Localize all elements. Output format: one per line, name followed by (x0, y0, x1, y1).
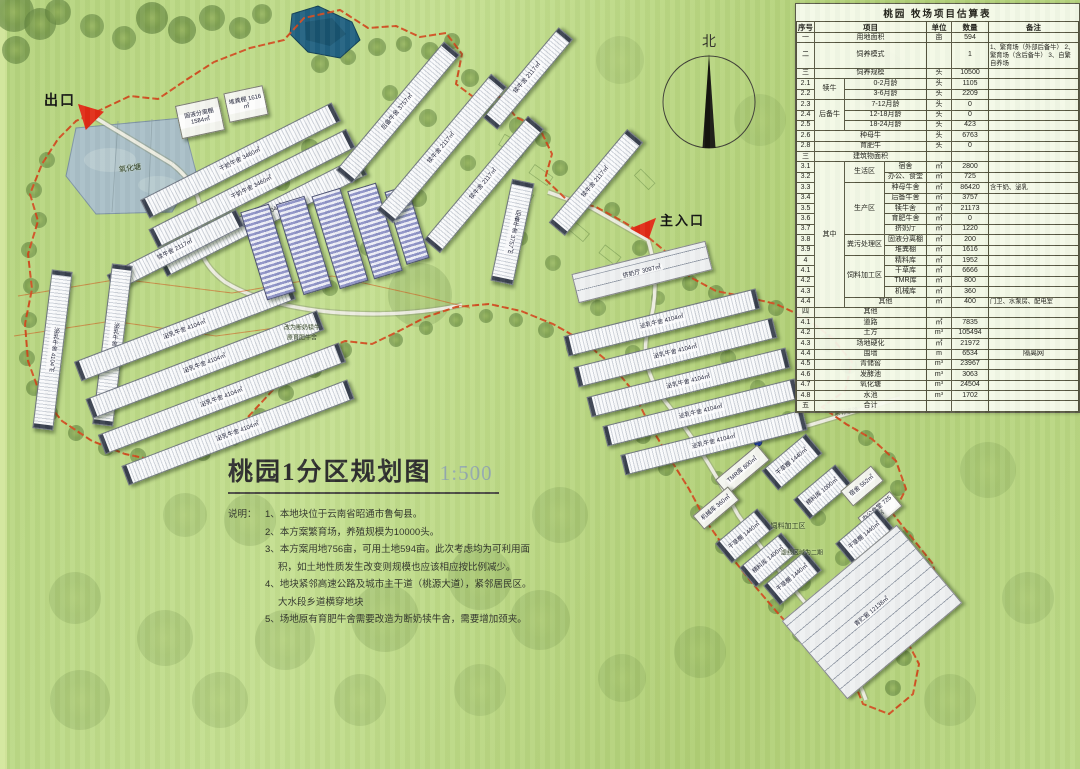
note-line: 1、本地块位于云南省昭通市鲁甸县。 (265, 506, 540, 524)
table-cell: 2209 (952, 89, 989, 99)
note-line: 4、地块紧邻高速公路及城市主干道（桃源大道），紧邻居民区。大水段乡道横穿地块 (265, 576, 540, 611)
table-cell: 24504 (952, 380, 989, 390)
building-label: 犊牛舍 2117㎡ (580, 164, 611, 200)
table-cell: 犊牛舍 (885, 204, 927, 214)
table-cell: 固液分离棚 (885, 235, 927, 245)
map-text-label: 饲料加工区 (771, 521, 806, 531)
table-cell: ㎡ (927, 266, 952, 276)
table-header-cell: 序号 (797, 22, 815, 33)
table-cell: 0 (952, 110, 989, 120)
table-cell: 1220 (952, 224, 989, 234)
table-cell: ㎡ (927, 339, 952, 349)
table-cell: 后备牛 (815, 100, 845, 131)
table-cell: 0 (952, 100, 989, 110)
main-entrance-label: 主入口 (660, 210, 705, 229)
table-cell (989, 141, 1079, 151)
table-cell: 饲料加工区 (845, 256, 885, 298)
table-cell (989, 224, 1079, 234)
table-cell: 精料库 (885, 256, 927, 266)
table-cell: 725 (952, 172, 989, 182)
table-cell: 机械库 (885, 287, 927, 297)
table-cell: 3-6月龄 (845, 89, 927, 99)
table-cell: 2.5 (797, 120, 815, 130)
table-cell (989, 79, 1079, 89)
table-cell: m³ (927, 370, 952, 380)
table-cell: 12-18月龄 (845, 110, 927, 120)
table-cell: 4.4 (797, 349, 815, 359)
map-text-label: 改为断奶犊牛 (284, 323, 320, 332)
table-cell (989, 307, 1079, 317)
table-cell: 土方 (815, 328, 927, 338)
building-label: 机械库 360㎡ (699, 493, 732, 523)
building-barn: 犊牛舍 2117㎡ (549, 129, 644, 236)
map-text-label: 虚线区域为二期 (781, 548, 823, 557)
building-barn: 后备牛舍 3757㎡ (490, 179, 534, 286)
table-cell: 粪污处理区 (845, 235, 885, 256)
table-cell: ㎡ (927, 235, 952, 245)
table-cell: ㎡ (927, 162, 952, 172)
table-cell: 围墙 (815, 349, 927, 359)
table-cell: 头 (927, 120, 952, 130)
table-cell: 4.2 (797, 328, 815, 338)
table-cell: 1702 (952, 391, 989, 401)
table-cell: 6534 (952, 349, 989, 359)
plan-scale: 1:500 (440, 461, 493, 485)
building-label: 泌乳牛舍 4104㎡ (199, 386, 245, 409)
table-cell (989, 276, 1079, 286)
notes-prefix: 说明： (228, 506, 257, 524)
table-cell: 0 (952, 214, 989, 224)
building-label: 后备牛舍 3757㎡ (503, 209, 521, 255)
table-cell: 1、繁育场（外部后备牛） 2、繁育场（含后备牛） 3、自繁自养场 (989, 43, 1079, 69)
building-label: 固液分离棚 1584㎡ (178, 107, 222, 129)
table-cell (989, 256, 1079, 266)
table-cell (989, 131, 1079, 141)
table-cell (989, 266, 1079, 276)
table-cell: ㎡ (927, 297, 952, 307)
table-cell: 0 (952, 141, 989, 151)
north-arrow: 北 (654, 34, 764, 156)
building-label: 青贮窖 12138㎡ (853, 595, 891, 629)
table-cell: 1105 (952, 79, 989, 89)
table-cell: 含干奶、泌乳 (989, 183, 1079, 193)
table-cell: 干草库 (885, 266, 927, 276)
table-cell: 育肥牛 (815, 141, 927, 151)
table-cell: 2.2 (797, 89, 815, 99)
table-cell: 7835 (952, 318, 989, 328)
estimate-table-title: 桃园 牧场项目估算表 (796, 4, 1079, 21)
table-header-cell: 数量 (952, 22, 989, 33)
table-cell: 发酵池 (815, 370, 927, 380)
table-cell: 头 (927, 100, 952, 110)
table-cell: 三 (797, 152, 815, 162)
building-label: 泌乳牛舍 4104㎡ (162, 318, 208, 341)
table-cell: 头 (927, 141, 952, 151)
table-cell (989, 110, 1079, 120)
table-cell: 其他 (845, 297, 927, 307)
table-cell: 生产区 (845, 183, 885, 235)
table-cell: ㎡ (927, 256, 952, 266)
building-slab: 挤奶厅 3097㎡ (571, 241, 712, 303)
table-cell (952, 152, 989, 162)
building-shed: 机械库 360㎡ (693, 486, 740, 529)
table-cell (989, 391, 1079, 401)
table-cell: m (927, 349, 952, 359)
building-label: TMR库 800㎡ (725, 455, 759, 485)
table-cell: 0-2月龄 (845, 79, 927, 89)
map-text-label: 原育肥牛舍 (287, 333, 317, 342)
building-label: 泌乳牛舍 4104㎡ (651, 343, 698, 361)
table-cell: 头 (927, 131, 952, 141)
table-cell: 3.6 (797, 214, 815, 224)
table-cell: ㎡ (927, 276, 952, 286)
table-cell: 3.4 (797, 193, 815, 203)
table-cell: 饲养规模 (815, 68, 927, 78)
table-cell: 4.1 (797, 266, 815, 276)
note-line: 3、本方案用地756亩，可用土地594亩。此次考虑均为可利用面积，如土地性质发生… (265, 541, 540, 576)
table-cell: 400 (952, 297, 989, 307)
estimate-table: 桃园 牧场项目估算表 序号项目单位数量备注一用地面积亩594二饲养模式11、繁育… (795, 3, 1080, 413)
table-cell: 6763 (952, 131, 989, 141)
note-line: 5、场地原有育肥牛舍需要改造为断奶犊牛舍，需要增加颈夹。 (265, 611, 540, 629)
table-cell: 4.3 (797, 339, 815, 349)
table-cell: 21173 (952, 204, 989, 214)
table-cell (952, 307, 989, 317)
building-label: 干草棚 1440㎡ (726, 520, 762, 552)
table-cell: 10500 (952, 68, 989, 78)
table-cell (989, 214, 1079, 224)
table-cell (989, 162, 1079, 172)
table-cell (989, 380, 1079, 390)
table-cell: ㎡ (927, 245, 952, 255)
table-cell: 育肥牛舍 (885, 214, 927, 224)
table-cell: 头 (927, 79, 952, 89)
table-cell: 3.5 (797, 204, 815, 214)
table-cell (989, 33, 1079, 43)
table-cell: 道路 (815, 318, 927, 328)
table-cell: ㎡ (927, 183, 952, 193)
table-cell: 3.8 (797, 235, 815, 245)
table-cell (952, 401, 989, 411)
table-cell: 堆粪棚 (885, 245, 927, 255)
building-barn: 犊牛舍 2117㎡ (377, 73, 508, 223)
table-cell (989, 193, 1079, 203)
table-cell: 青储窖 (815, 359, 927, 369)
table-header-cell: 项目 (815, 22, 927, 33)
table-cell: 饲养模式 (815, 43, 927, 69)
table-cell (927, 43, 952, 69)
table-cell: 800 (952, 276, 989, 286)
table-cell: 五 (797, 401, 815, 411)
table-cell: 4.3 (797, 287, 815, 297)
table-cell: 犊牛 (815, 79, 845, 100)
table-cell (989, 68, 1079, 78)
table-cell: 生活区 (845, 162, 885, 183)
table-cell (989, 359, 1079, 369)
table-cell: ㎡ (927, 204, 952, 214)
table-cell (927, 401, 952, 411)
building-label: 干奶牛舍 3460㎡ (229, 174, 274, 201)
table-cell: m³ (927, 359, 952, 369)
building-label: 干草棚 1440㎡ (774, 446, 810, 478)
north-label: 北 (654, 34, 764, 50)
table-cell: 氧化塘 (815, 380, 927, 390)
plan-title-text: 桃园1分区规划图 (228, 459, 432, 486)
building-label: 泌乳牛舍 4104㎡ (45, 327, 59, 373)
table-cell (989, 204, 1079, 214)
table-cell: 2.3 (797, 100, 815, 110)
table-cell: 亩 (927, 33, 952, 43)
table-cell: m³ (927, 380, 952, 390)
table-cell: 3.9 (797, 245, 815, 255)
table-cell: 种母牛舍 (885, 183, 927, 193)
page-title: 桃园1分区规划图 1:500 (228, 452, 499, 494)
table-cell: 4.8 (797, 391, 815, 401)
table-cell: ㎡ (927, 318, 952, 328)
exit-label: 出口 (44, 90, 76, 110)
building-label: 泌乳牛舍 4104㎡ (638, 313, 685, 331)
table-cell (989, 328, 1079, 338)
table-cell: 水池 (815, 391, 927, 401)
table-cell: 4.5 (797, 359, 815, 369)
building-label: 泌乳牛舍 4104㎡ (182, 352, 228, 375)
building-label: 犊牛舍 2117㎡ (512, 60, 543, 96)
building-label: 犊牛舍 2117㎡ (468, 166, 499, 202)
table-header-cell: 备注 (989, 22, 1079, 33)
table-cell: 种母牛 (815, 131, 927, 141)
table-cell: 3.2 (797, 172, 815, 182)
table-cell: 2800 (952, 162, 989, 172)
table-cell (989, 152, 1079, 162)
table-cell: 18-24月龄 (845, 120, 927, 130)
table-cell: 105494 (952, 328, 989, 338)
table-cell: ㎡ (927, 214, 952, 224)
table-cell: 四 (797, 307, 815, 317)
table-cell: 办公、食堂 (885, 172, 927, 182)
compass-icon (655, 50, 763, 154)
table-cell: 其他 (815, 307, 927, 317)
building-label: 泌乳牛舍 4104㎡ (690, 433, 737, 451)
table-cell: 3.3 (797, 183, 815, 193)
table-cell: m³ (927, 328, 952, 338)
table-cell (927, 307, 952, 317)
table-cell: 21972 (952, 339, 989, 349)
building-shed: 固液分离棚 1584㎡ (175, 97, 225, 139)
table-cell: 1616 (952, 245, 989, 255)
table-cell: 4.1 (797, 318, 815, 328)
table-cell: 360 (952, 287, 989, 297)
table-cell: 一 (797, 33, 815, 43)
table-cell: 合计 (815, 401, 927, 411)
building-barn: 泌乳牛舍 4104㎡ (32, 269, 72, 430)
building-label: 泌乳牛舍 4104㎡ (664, 373, 711, 391)
table-cell: 3757 (952, 193, 989, 203)
table-cell (989, 287, 1079, 297)
table-cell: 4 (797, 256, 815, 266)
table-cell: 二 (797, 43, 815, 69)
table-cell: 423 (952, 120, 989, 130)
table-cell: 1952 (952, 256, 989, 266)
table-cell: 3.1 (797, 162, 815, 172)
table-cell: 场地硬化 (815, 339, 927, 349)
table-cell: 3.7 (797, 224, 815, 234)
building-label: 后备牛舍 3757㎡ (380, 92, 415, 132)
table-cell (927, 152, 952, 162)
table-cell: 用地面积 (815, 33, 927, 43)
table-cell: 4.2 (797, 276, 815, 286)
table-cell: 3063 (952, 370, 989, 380)
table-cell (989, 235, 1079, 245)
table-cell: 2.4 (797, 110, 815, 120)
table-cell: 建筑物面积 (815, 152, 927, 162)
table-cell: 4.6 (797, 370, 815, 380)
table-cell (989, 318, 1079, 328)
table-cell: 4.4 (797, 297, 815, 307)
building-label: 犊牛舍 2117㎡ (426, 130, 457, 166)
table-cell: 门卫、水泵房、配电室 (989, 297, 1079, 307)
notes-list: 1、本地块位于云南省昭通市鲁甸县。2、本方案繁育场，养殖规模为10000头。3、… (265, 506, 540, 629)
building-label: 干奶牛舍 3460㎡ (217, 146, 262, 173)
table-cell: 头 (927, 68, 952, 78)
building-shed: 堆粪棚 1616㎡ (223, 85, 268, 123)
building-label: 堆粪棚 1616㎡ (226, 93, 266, 114)
table-cell (989, 172, 1079, 182)
table-cell: 2.8 (797, 141, 815, 151)
table-cell: ㎡ (927, 172, 952, 182)
table-header-cell: 单位 (927, 22, 952, 33)
table-cell: 200 (952, 235, 989, 245)
table-cell: TMR库 (885, 276, 927, 286)
table-cell: 1 (952, 43, 989, 69)
table-cell: 86420 (952, 183, 989, 193)
table-cell: 7-12月龄 (845, 100, 927, 110)
table-cell: 2.6 (797, 131, 815, 141)
table-cell: ㎡ (927, 193, 952, 203)
plan-title-block: 桃园1分区规划图 1:500 说明： 1、本地块位于云南省昭通市鲁甸县。2、本方… (228, 452, 540, 629)
plan-notes: 说明： 1、本地块位于云南省昭通市鲁甸县。2、本方案繁育场，养殖规模为10000… (228, 506, 540, 629)
table-cell (989, 100, 1079, 110)
table-cell: 后备牛舍 (885, 193, 927, 203)
table-cell (989, 120, 1079, 130)
table-cell: 其中 (815, 162, 845, 307)
table-cell: 三 (797, 68, 815, 78)
table-cell (989, 370, 1079, 380)
estimate-table-grid: 序号项目单位数量备注一用地面积亩594二饲养模式11、繁育场（外部后备牛） 2、… (796, 21, 1079, 412)
table-cell: 2.1 (797, 79, 815, 89)
table-cell: 头 (927, 89, 952, 99)
table-cell: 隔离网 (989, 349, 1079, 359)
table-cell: 头 (927, 110, 952, 120)
table-cell: 4.7 (797, 380, 815, 390)
table-cell (989, 401, 1079, 411)
table-cell: 594 (952, 33, 989, 43)
table-cell: m³ (927, 391, 952, 401)
site-plan-canvas: 干奶牛舍 3460㎡干奶牛舍 3460㎡泌乳牛舍 4104㎡犊牛舍 2117㎡固… (0, 0, 1080, 769)
building-label: 挤奶厅 3097㎡ (621, 264, 662, 281)
table-cell (989, 245, 1079, 255)
note-line: 2、本方案繁育场，养殖规模为10000头。 (265, 524, 540, 542)
building-label: 泌乳牛舍 4104㎡ (215, 420, 261, 443)
table-cell: 6666 (952, 266, 989, 276)
table-cell: 挤奶厅 (885, 224, 927, 234)
table-cell: ㎡ (927, 224, 952, 234)
table-cell (989, 339, 1079, 349)
table-cell: 23967 (952, 359, 989, 369)
building-label: 精料库 1000㎡ (804, 476, 840, 508)
building-label: 宿舍 562㎡ (848, 473, 877, 499)
table-cell: ㎡ (927, 287, 952, 297)
table-cell (989, 89, 1079, 99)
table-cell: 宿舍 (885, 162, 927, 172)
building-label: 泌乳牛舍 4104㎡ (677, 403, 724, 421)
